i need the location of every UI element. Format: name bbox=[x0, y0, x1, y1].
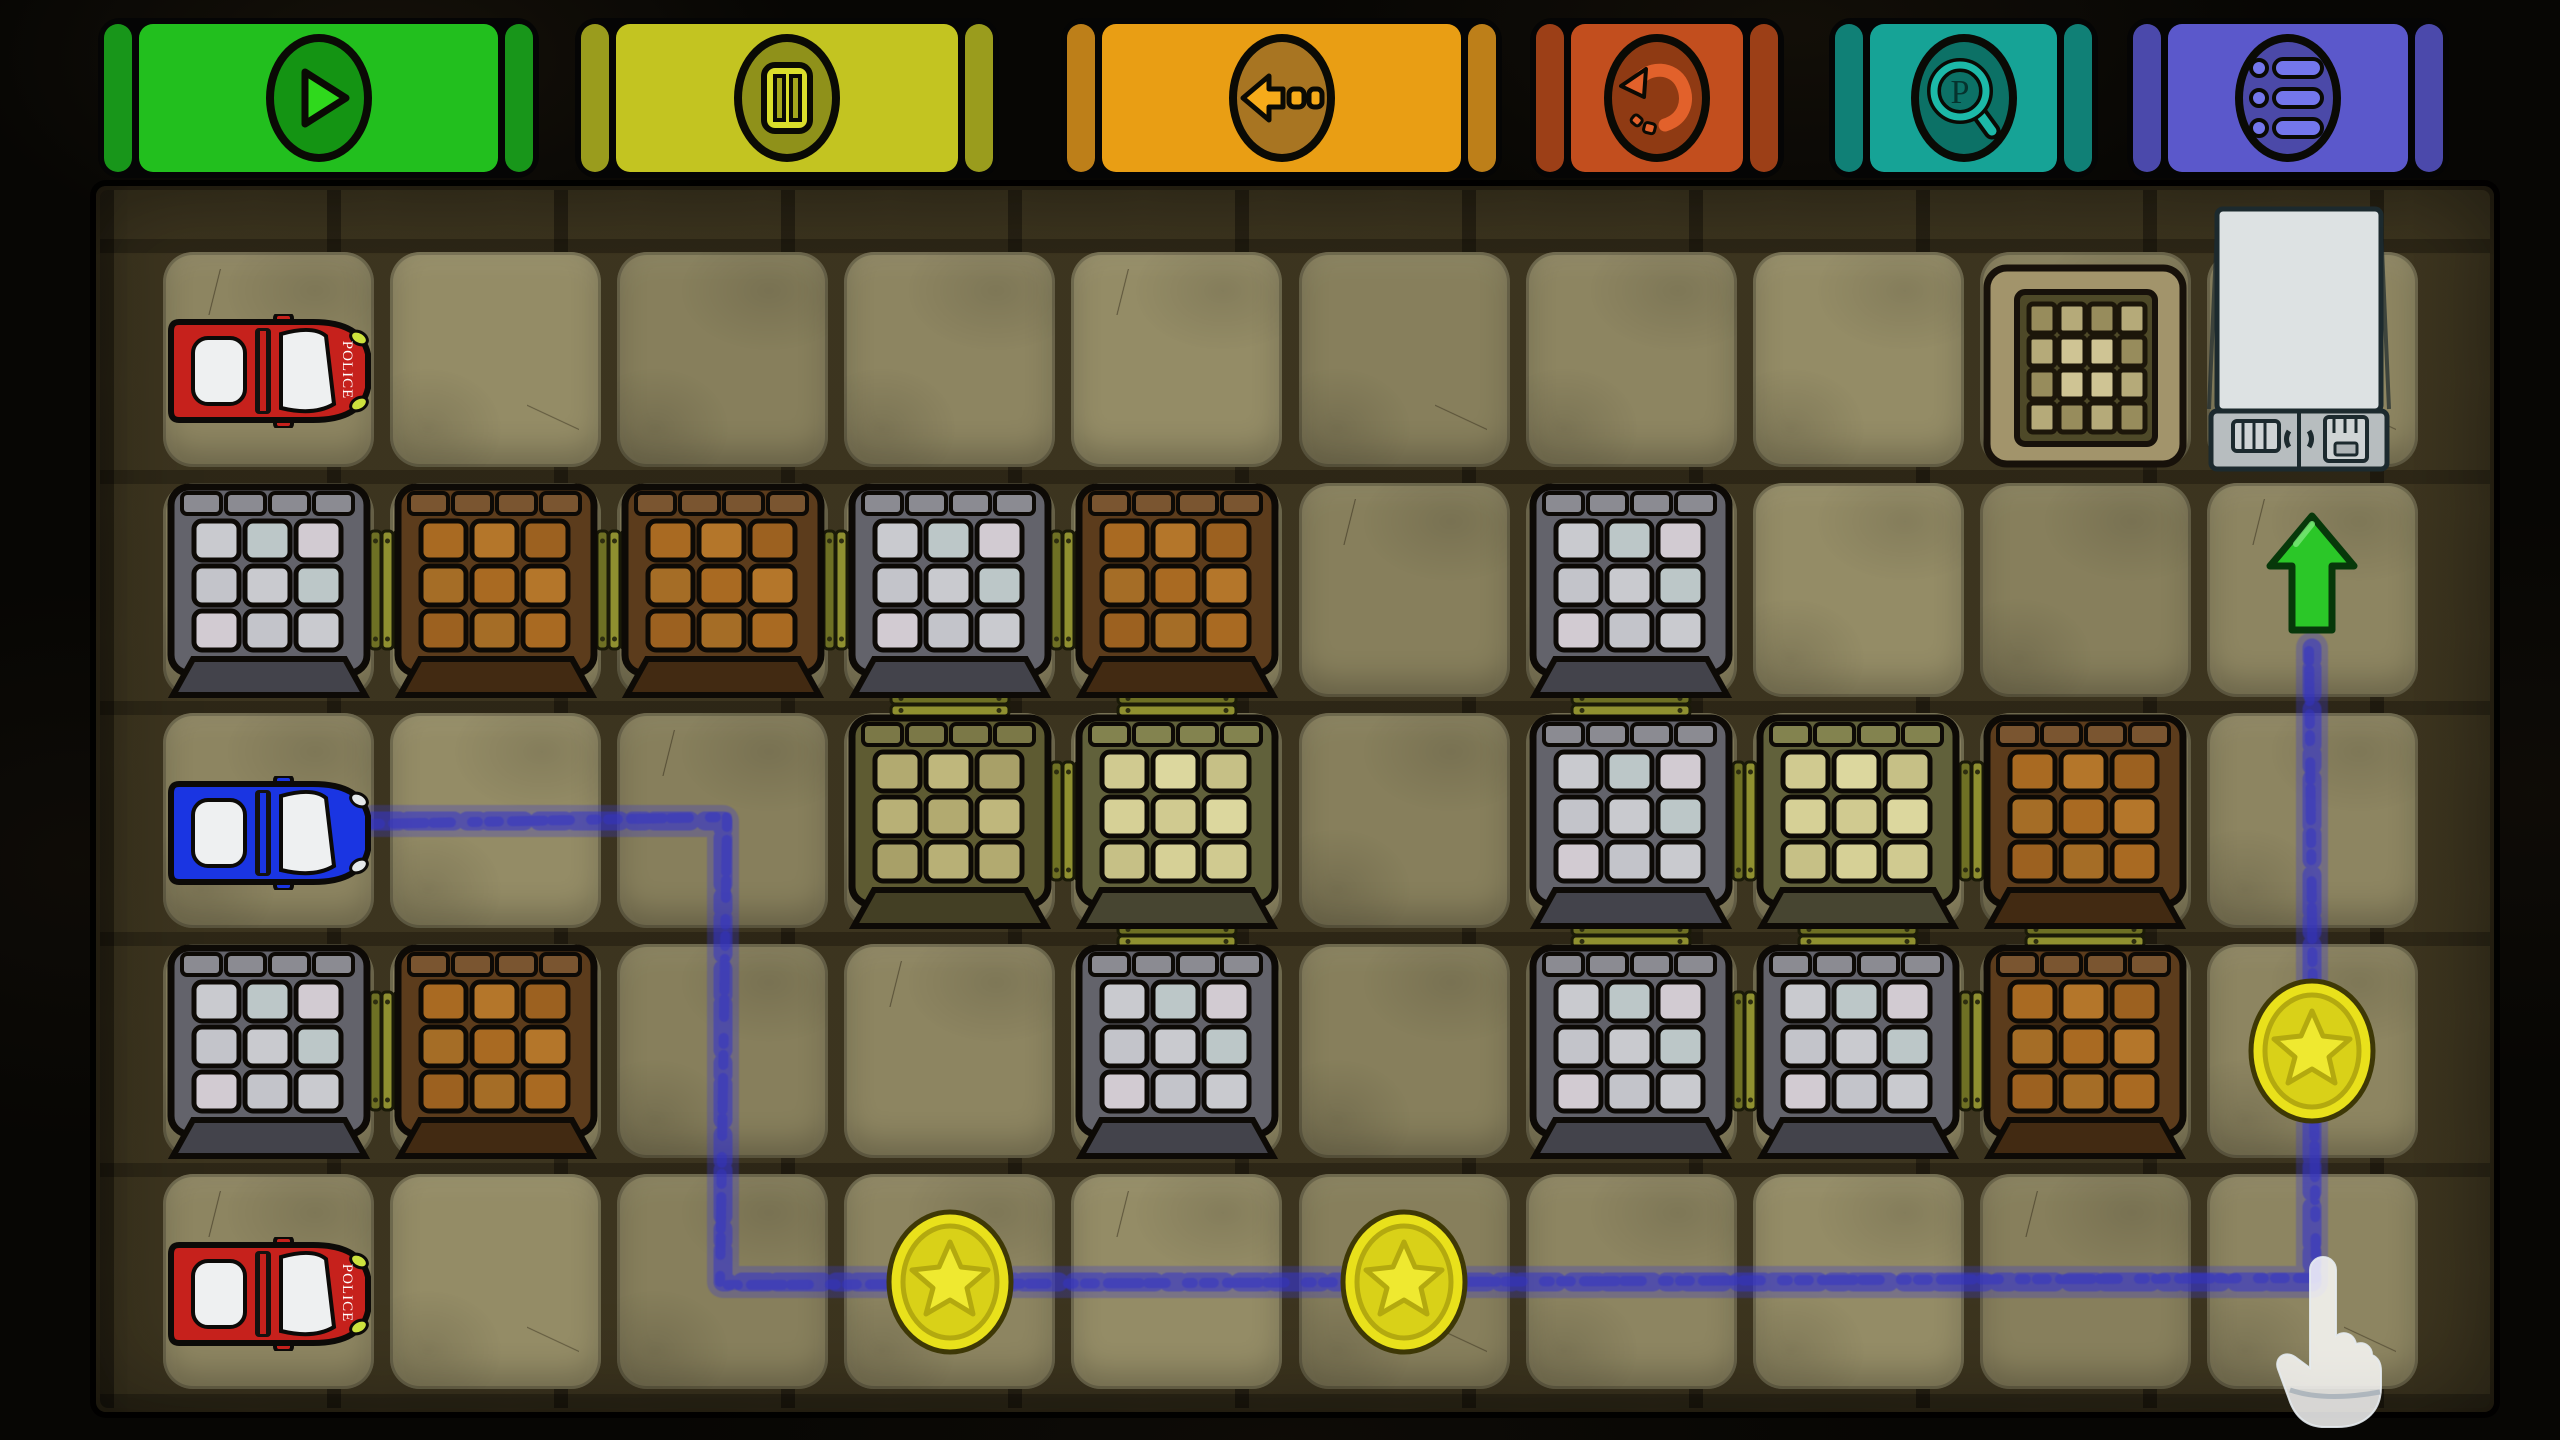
police-car[interactable]: POLICE bbox=[163, 314, 375, 428]
crate-grey bbox=[1529, 944, 1733, 1162]
pause-button[interactable] bbox=[575, 18, 999, 178]
step-back-button[interactable] bbox=[1061, 18, 1502, 178]
play-button-left-edge bbox=[104, 24, 132, 172]
back-arrow-icon bbox=[1229, 34, 1335, 162]
star-coin bbox=[884, 1207, 1016, 1357]
restart-button-left-edge bbox=[1536, 24, 1564, 172]
play-button-body bbox=[139, 24, 498, 172]
crate-brown bbox=[394, 483, 598, 701]
menu-button[interactable] bbox=[2127, 18, 2449, 178]
menu-list-icon bbox=[2235, 34, 2341, 162]
svg-text:POLICE: POLICE bbox=[339, 341, 355, 400]
star-coin bbox=[2246, 976, 2378, 1126]
crate-grey bbox=[167, 483, 371, 701]
preview-button-left-edge bbox=[1835, 24, 1863, 172]
crate-brown bbox=[1983, 944, 2187, 1162]
back-button-body bbox=[1102, 24, 1461, 172]
crate-brown bbox=[1075, 483, 1279, 701]
menu-button-body bbox=[2168, 24, 2408, 172]
preview-button-right-edge bbox=[2064, 24, 2092, 172]
crate-brown bbox=[394, 944, 598, 1162]
game-screen: P bbox=[0, 0, 2560, 1440]
crate-grey bbox=[1075, 944, 1279, 1162]
crate-brown bbox=[1983, 714, 2187, 932]
crate-grey bbox=[167, 944, 371, 1162]
route-arrow-up-icon bbox=[2266, 510, 2358, 638]
pause-button-right-edge bbox=[965, 24, 993, 172]
star-coin bbox=[1338, 1207, 1470, 1357]
delivery-truck-goal bbox=[2207, 203, 2391, 475]
restart-button[interactable] bbox=[1530, 18, 1784, 178]
preview-button-body: P bbox=[1870, 24, 2057, 172]
crate-grey bbox=[848, 483, 1052, 701]
restart-icon bbox=[1604, 34, 1710, 162]
game-board: POLICE POLICE bbox=[96, 186, 2494, 1412]
pause-button-body bbox=[616, 24, 958, 172]
hand-cursor bbox=[2254, 1250, 2394, 1430]
grate-pit bbox=[1983, 264, 2187, 468]
crate-olive_light bbox=[1756, 714, 1960, 932]
pause-icon bbox=[734, 34, 840, 162]
play-button[interactable] bbox=[98, 18, 539, 178]
menu-button-left-edge bbox=[2133, 24, 2161, 172]
svg-text:POLICE: POLICE bbox=[339, 1263, 355, 1322]
crate-grey bbox=[1756, 944, 1960, 1162]
crate-grey bbox=[1529, 483, 1733, 701]
player-car[interactable] bbox=[163, 776, 375, 890]
play-button-right-edge bbox=[505, 24, 533, 172]
magnifier-p-icon: P bbox=[1911, 34, 2017, 162]
restart-button-right-edge bbox=[1750, 24, 1778, 172]
crate-grey bbox=[1529, 714, 1733, 932]
preview-button[interactable]: P bbox=[1829, 18, 2098, 178]
crate-olive bbox=[848, 714, 1052, 932]
pause-button-left-edge bbox=[581, 24, 609, 172]
police-car[interactable]: POLICE bbox=[163, 1237, 375, 1351]
crate-brown bbox=[621, 483, 825, 701]
back-button-left-edge bbox=[1067, 24, 1095, 172]
restart-button-body bbox=[1571, 24, 1743, 172]
play-icon bbox=[266, 34, 372, 162]
magnifier-letter: P bbox=[1950, 74, 1969, 111]
back-button-right-edge bbox=[1468, 24, 1496, 172]
menu-button-right-edge bbox=[2415, 24, 2443, 172]
crate-olive_light bbox=[1075, 714, 1279, 932]
